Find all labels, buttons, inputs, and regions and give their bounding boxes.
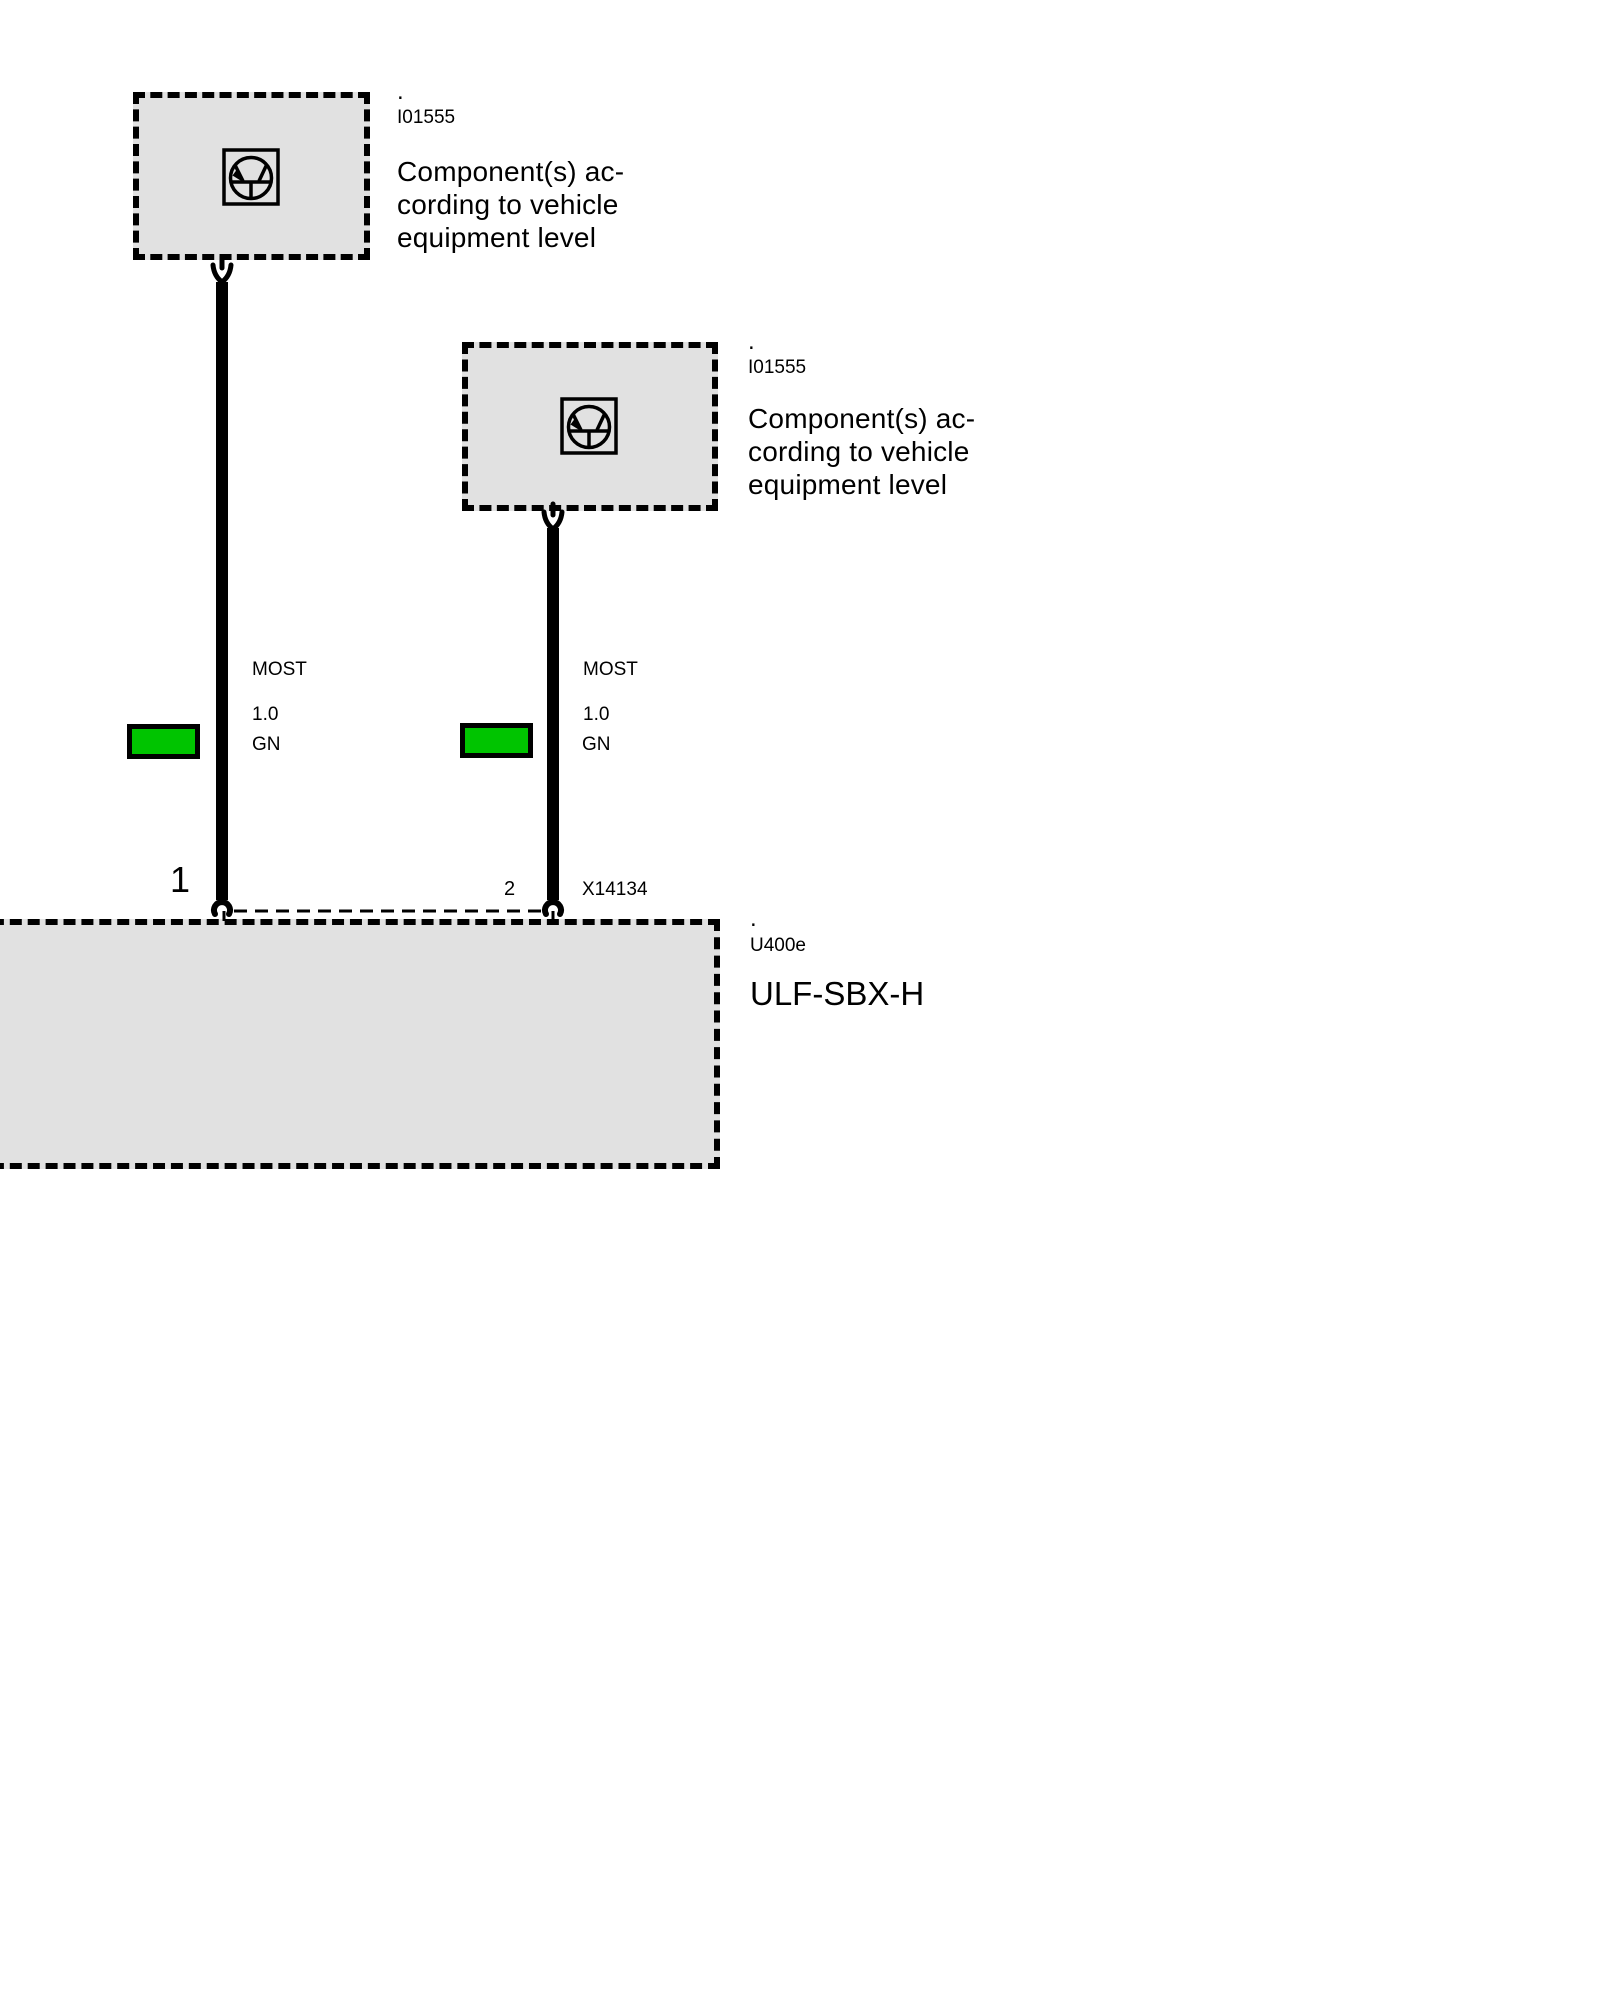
wire-color-swatch-left [127,724,200,759]
component-code: I01555 [748,357,806,379]
wire-color-code-label: GN [252,734,281,755]
bus-label: MOST [583,659,638,680]
component-code: I01555 [397,107,455,129]
component-description: Component(s) ac- cording to vehicle equi… [397,155,624,254]
pin-number: 1 [170,861,190,899]
wire-cross-section-label: 1.0 [583,704,609,725]
control-unit-name: ULF-SBX-H [750,976,924,1012]
wire-cross-section-label: 1.0 [252,704,278,725]
wiring-diagram-canvas: . I01555 Component(s) ac- cording to veh… [0,0,1600,2000]
socket-arc-icon [214,902,230,914]
wire-color-swatch-right [460,723,533,758]
pin-number: 2 [504,878,515,900]
wire-color-code-label: GN [582,734,611,755]
reference-dot: . [750,913,757,925]
control-unit-code: U400e [750,935,806,957]
reference-dot: . [397,86,404,98]
component-description: Component(s) ac- cording to vehicle equi… [748,402,975,501]
bus-label: MOST [252,659,307,680]
reference-dot: . [748,336,755,348]
connector-label: X14134 [582,879,648,900]
